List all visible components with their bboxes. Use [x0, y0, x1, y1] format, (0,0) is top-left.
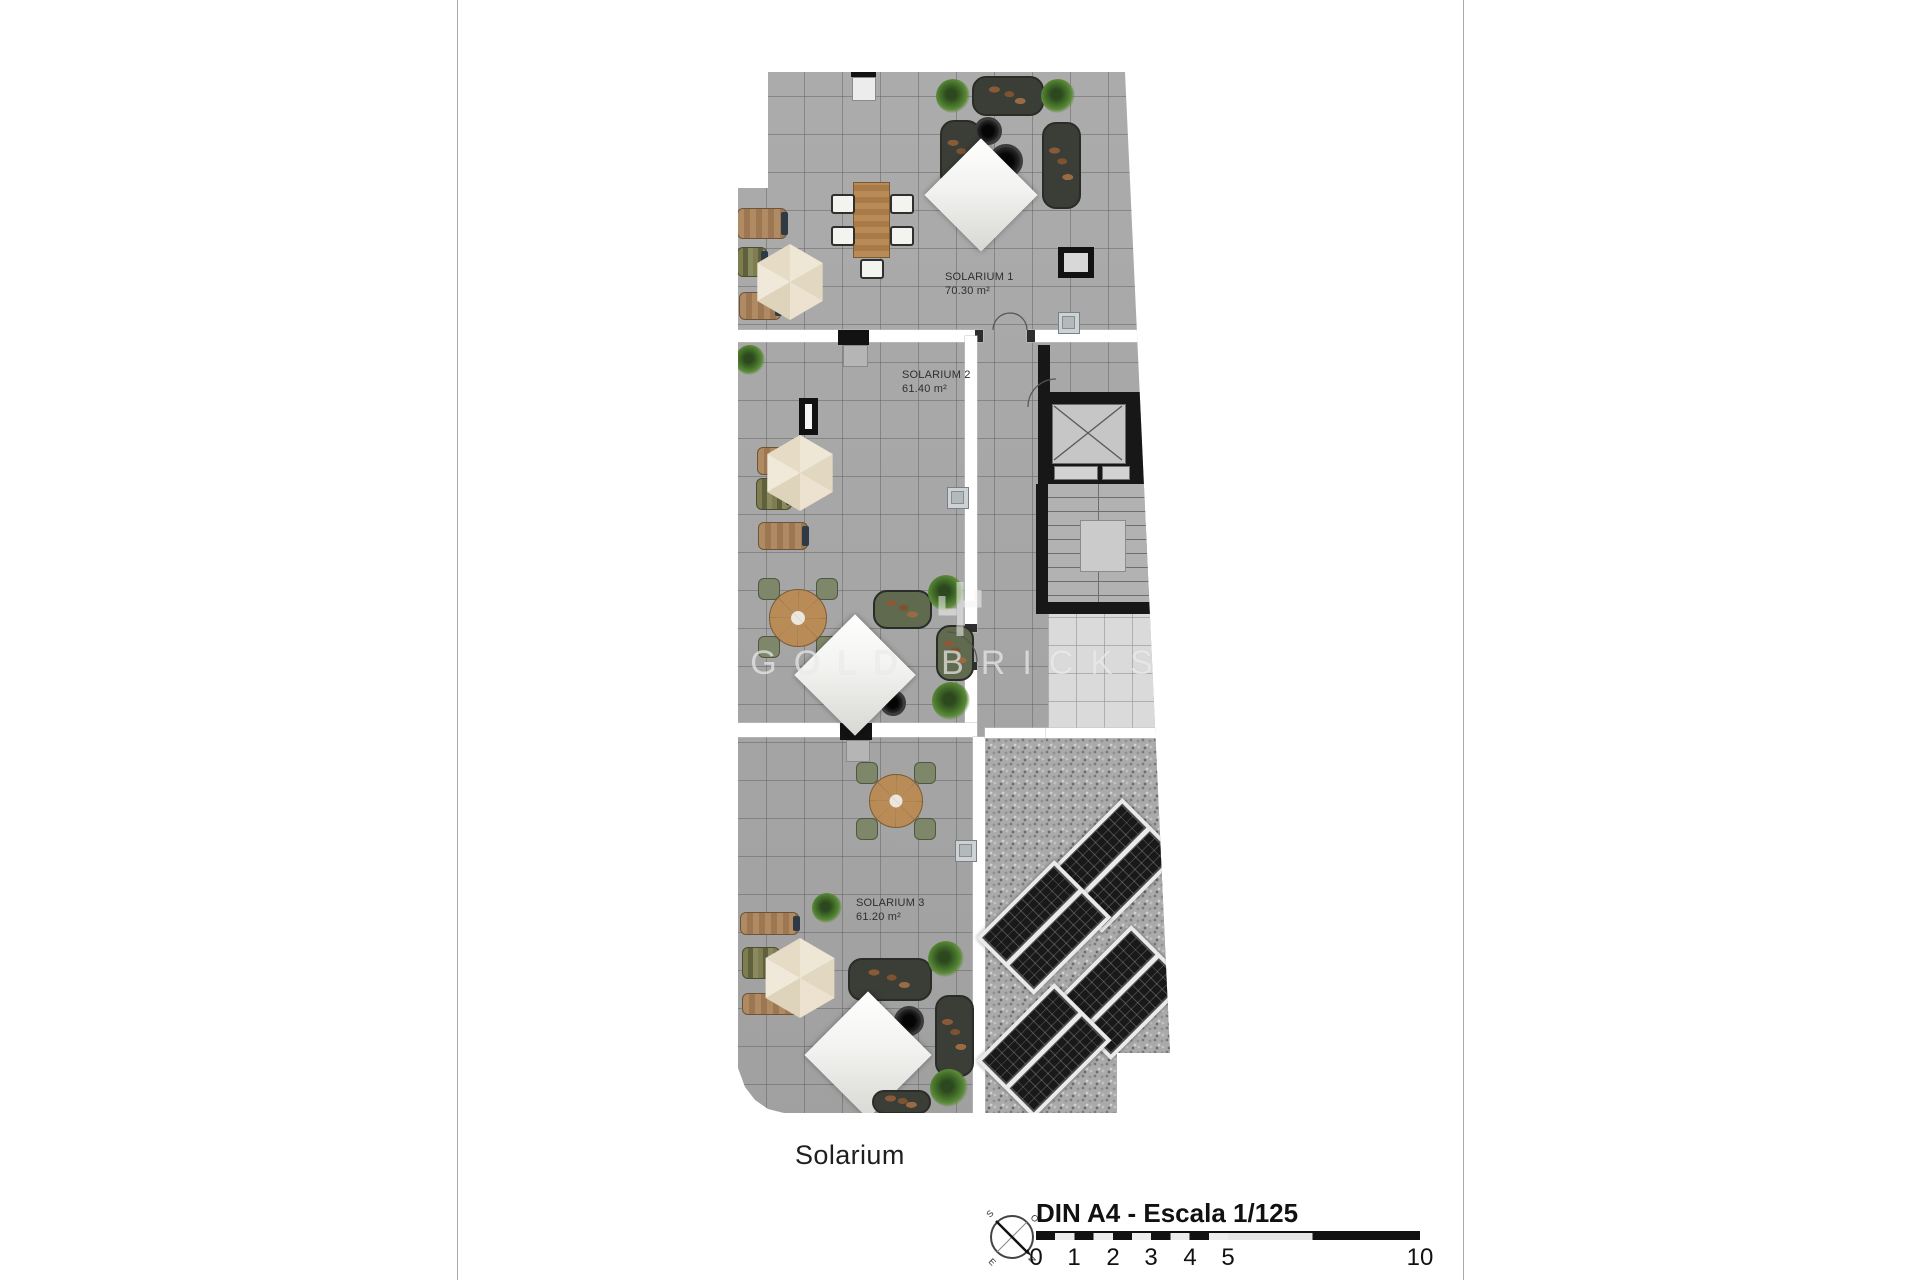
- sink: [955, 840, 977, 862]
- terrace-white-tiles: [1048, 614, 1162, 730]
- chair: [816, 578, 838, 600]
- scale-tick-10: 10: [1407, 1244, 1434, 1272]
- scale-tick-3: 3: [1144, 1244, 1157, 1272]
- chimney-cap: [852, 77, 876, 101]
- tiled-floor: [728, 62, 1180, 1123]
- plan-caption: Solarium: [795, 1140, 905, 1171]
- wall-sol1-sol2-right: [1027, 330, 1162, 342]
- sofa: [873, 590, 932, 629]
- room-name: SOLARIUM 2: [902, 368, 971, 382]
- plant: [928, 575, 964, 611]
- planter-box: [799, 398, 818, 435]
- sofa: [848, 958, 932, 1001]
- sofa: [935, 995, 974, 1077]
- door-jamb: [1027, 330, 1035, 342]
- chair: [914, 762, 936, 784]
- elevator-machinery: [1054, 466, 1098, 480]
- stair-wall-bottom: [1036, 602, 1162, 614]
- elevator-cab: [1052, 404, 1126, 464]
- scale-title: DIN A4 - Escala 1/125: [1036, 1198, 1298, 1229]
- plant: [936, 79, 970, 113]
- chimney: [838, 330, 869, 345]
- stair-landing: [1080, 520, 1126, 572]
- chair: [758, 636, 780, 658]
- chair: [914, 818, 936, 840]
- plant: [932, 682, 970, 720]
- compass-label-east: E: [987, 1256, 998, 1267]
- screenshot-canvas: SOLARIUM 1 70.30 m² SOLARIUM 2 61.40 m² …: [0, 0, 1920, 1280]
- chair: [831, 194, 855, 214]
- chair: [890, 226, 914, 246]
- plant: [930, 1069, 968, 1107]
- wall-whiteroom-bottom: [1046, 728, 1170, 738]
- room-name: SOLARIUM 1: [945, 270, 1014, 284]
- scale-tick-1: 1: [1067, 1244, 1080, 1272]
- scale-tick-5: 5: [1221, 1244, 1234, 1272]
- stair-wall-left: [1036, 484, 1048, 602]
- room-area: 61.20 m²: [856, 910, 925, 924]
- scale-tick-4: 4: [1183, 1244, 1196, 1272]
- wall-core-stub: [1038, 345, 1050, 395]
- chimney: [851, 62, 876, 77]
- floor-plan: SOLARIUM 1 70.30 m² SOLARIUM 2 61.40 m² …: [728, 62, 1180, 1123]
- sink: [1058, 312, 1080, 334]
- chimney-cap: [846, 740, 870, 762]
- sink: [947, 487, 969, 509]
- room-label-solarium-1: SOLARIUM 1 70.30 m²: [945, 270, 1014, 299]
- chimney-cap: [843, 345, 868, 367]
- dining-table: [853, 182, 890, 258]
- scale-bar: [1036, 1231, 1420, 1240]
- sofa: [972, 76, 1044, 116]
- chair: [856, 818, 878, 840]
- chair: [758, 578, 780, 600]
- sofa: [872, 1090, 931, 1114]
- sofa: [936, 625, 974, 681]
- scale-tick-2: 2: [1106, 1244, 1119, 1272]
- elevator-machinery: [1102, 466, 1130, 480]
- room-label-solarium-2: SOLARIUM 2 61.40 m²: [902, 368, 971, 397]
- plant: [1041, 79, 1075, 113]
- chair: [890, 194, 914, 214]
- room-area: 61.40 m²: [902, 382, 971, 396]
- scale-tick-0: 0: [1029, 1244, 1042, 1272]
- plant: [928, 941, 964, 977]
- skylight: [1058, 247, 1094, 278]
- plant: [812, 893, 842, 923]
- room-name: SOLARIUM 3: [856, 896, 925, 910]
- room-label-solarium-3: SOLARIUM 3 61.20 m²: [856, 896, 925, 925]
- sun-lounger: [740, 912, 799, 935]
- plant: [735, 345, 765, 375]
- sofa: [1042, 122, 1081, 209]
- sun-lounger: [758, 522, 808, 550]
- chair: [856, 762, 878, 784]
- room-area: 70.30 m²: [945, 284, 1014, 298]
- sun-lounger: [737, 208, 787, 239]
- chair: [831, 226, 855, 246]
- chair: [860, 259, 884, 279]
- compass-label-south: S: [984, 1208, 995, 1219]
